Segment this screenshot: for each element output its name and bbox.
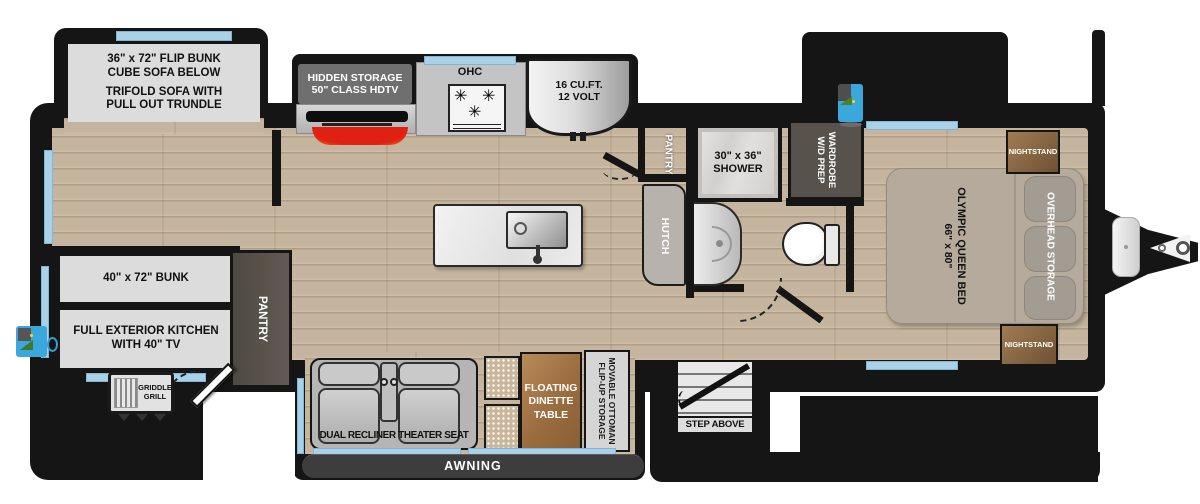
floorplan: 36" x 72" FLIP BUNK CUBE SOFA BELOW TRIF… [0, 0, 1200, 504]
cupholder-icon [380, 378, 388, 386]
wall-corridor-right [686, 124, 694, 298]
oven-handle [453, 124, 501, 129]
overhead-storage-label: OVERHEAD STORAGE [1043, 177, 1056, 317]
vanity-drain-icon [716, 240, 723, 247]
corridor-door-swing-arc [602, 158, 638, 180]
wall-kitchen-stub [272, 130, 281, 206]
nightstand-front: NIGHTSTAND [1000, 324, 1058, 366]
flip-bunk-slide-panel: 36" x 72" FLIP BUNK CUBE SOFA BELOW TRIF… [68, 44, 260, 122]
exterior-kitchen: FULL EXTERIOR KITCHEN WITH 40" TV [60, 310, 232, 368]
wardrobe-label: WARDROBE W/D PREP [814, 123, 838, 197]
wall-toilet-side [846, 198, 854, 292]
tv-icon [306, 111, 408, 122]
ohc-label: OHC [434, 66, 506, 79]
icon-detail [30, 334, 33, 337]
trifold-sofa-label: TRIFOLD SOFA WITH PULL OUT TRUNDLE [106, 86, 222, 113]
faucet-knob-icon [533, 255, 542, 264]
fridge-foot [570, 132, 576, 141]
fireplace-icon [312, 127, 408, 145]
pantry-cabinet-label: PANTRY [254, 259, 268, 379]
step-above-label-box: STEP ABOVE [676, 416, 754, 434]
exterior-shower-shadow [840, 122, 862, 127]
window-icon [116, 31, 232, 41]
hutch-label: HUTCH [657, 201, 671, 271]
griddle-grill: GRIDDLE GRILL [108, 372, 174, 414]
hidden-storage-label: HIDDEN STORAGE 50" CLASS HDTV [308, 72, 403, 97]
refrigerator: 16 CU.FT. 12 VOLT [526, 58, 632, 136]
pantry-corridor-label: PANTRY [661, 127, 674, 183]
movable-ottoman-label: MOVABLE OTTOMAN FLIP-UP STORAGE [597, 353, 617, 449]
grill-surface-icon [114, 378, 138, 408]
flip-bunk-label: 36" x 72" FLIP BUNK CUBE SOFA BELOW [107, 53, 221, 80]
window-icon [424, 56, 516, 65]
dinette-table: FLOATING DINETTE TABLE [520, 352, 582, 452]
icon-detail [852, 100, 855, 103]
nightstand-rear: NIGHTSTAND [1006, 130, 1060, 174]
fridge-label: 16 CU.FT. 12 VOLT [555, 79, 602, 104]
spray-port-icon [16, 326, 47, 357]
toilet-icon [782, 222, 828, 266]
theater-seat-label: DUAL RECLINER THEATER SEAT [312, 430, 476, 442]
window-icon [44, 150, 53, 244]
theater-console [380, 362, 398, 422]
burner-icon: ✳ [468, 102, 481, 122]
window-icon [866, 361, 958, 370]
fridge-foot [580, 132, 586, 141]
bunk-bed: 40" x 72" BUNK [60, 256, 232, 302]
hose-ring-icon [47, 337, 58, 352]
cupholder-icon [390, 378, 398, 386]
bed-label: OLYMPIC QUEEN BED 66" x 80" [938, 171, 970, 321]
underbody-block [800, 396, 1098, 482]
hitch-pin-icon [1158, 244, 1166, 252]
tv-stand-icon [322, 123, 392, 126]
cooktop-icon: ✳ ✳ ✳ [448, 84, 506, 132]
bed-seam [1014, 170, 1016, 322]
awning-bar: AWNING [302, 454, 644, 478]
exterior-shower-icon [838, 84, 863, 122]
hitch-coupler-icon [1176, 241, 1190, 255]
griddle-grill-label: GRIDDLE GRILL [139, 378, 171, 408]
sink-drain-icon [514, 222, 527, 235]
burner-icon: ✳ [454, 86, 467, 106]
theater-seat-back [398, 362, 460, 386]
theater-seat-back [318, 362, 380, 386]
shower: 30" x 36" SHOWER [694, 124, 782, 202]
window-icon [866, 121, 958, 130]
burner-icon: ✳ [482, 86, 495, 106]
hidden-storage-tv-cabinet: HIDDEN STORAGE 50" CLASS HDTV [298, 64, 412, 104]
propane-valve-icon [1124, 245, 1128, 249]
shower-label: 30" x 36" SHOWER [713, 150, 763, 176]
ottoman [484, 404, 520, 450]
icon-detail [20, 340, 33, 350]
toilet-tank-icon [824, 224, 840, 266]
entry-door-cutout [203, 392, 295, 488]
front-storage-section [802, 32, 1008, 110]
ottoman [484, 356, 520, 400]
front-cap-stub [1092, 30, 1105, 106]
window-icon [297, 378, 304, 454]
